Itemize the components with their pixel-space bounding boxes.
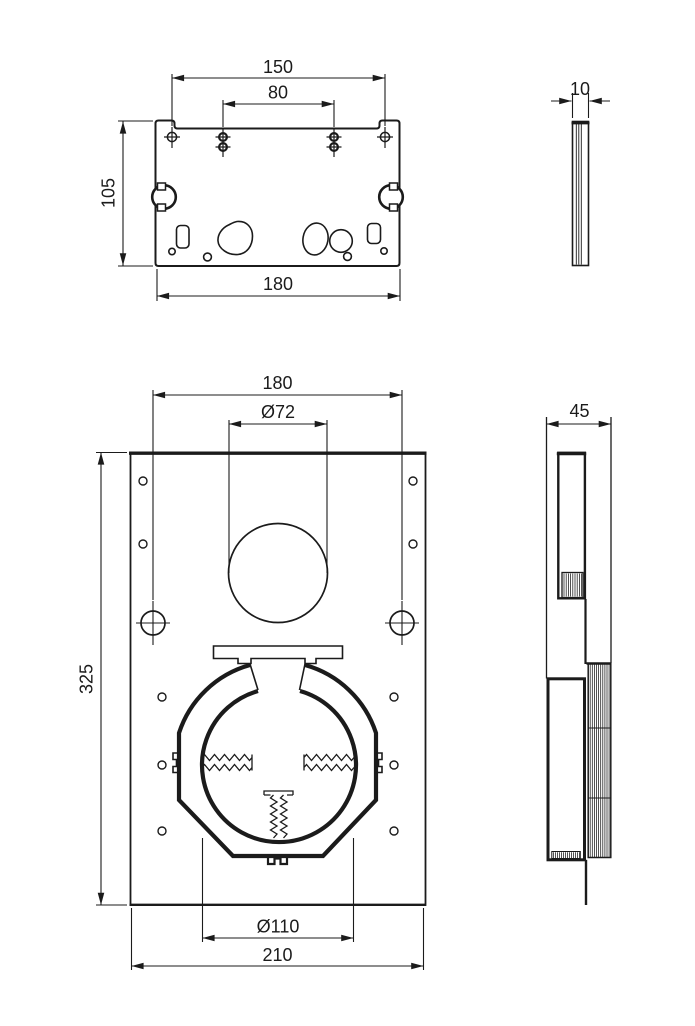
dim-label-72: Ø72 [261, 402, 295, 422]
technical-drawing: 150 80 105 180 10 [0, 0, 695, 1026]
dim-label-10: 10 [570, 79, 590, 99]
cutout-notch [390, 183, 398, 190]
dim-label-210: 210 [262, 945, 292, 965]
dim-label-180: 180 [263, 274, 293, 294]
dim-label-105: 105 [99, 178, 119, 208]
dim-label-45: 45 [569, 401, 589, 421]
cutout-notch [390, 204, 398, 211]
dim-label-80: 80 [268, 83, 288, 103]
canvas-background [0, 0, 695, 1026]
cutout-notch [158, 183, 166, 190]
dim-label-110: Ø110 [257, 917, 300, 937]
cutout-notch [158, 204, 166, 211]
dim-label-150: 150 [263, 57, 293, 77]
drawing-canvas: 150 80 105 180 10 [0, 0, 695, 1026]
dim-label-325: 325 [77, 664, 97, 694]
dim-label-180: 180 [262, 373, 292, 393]
